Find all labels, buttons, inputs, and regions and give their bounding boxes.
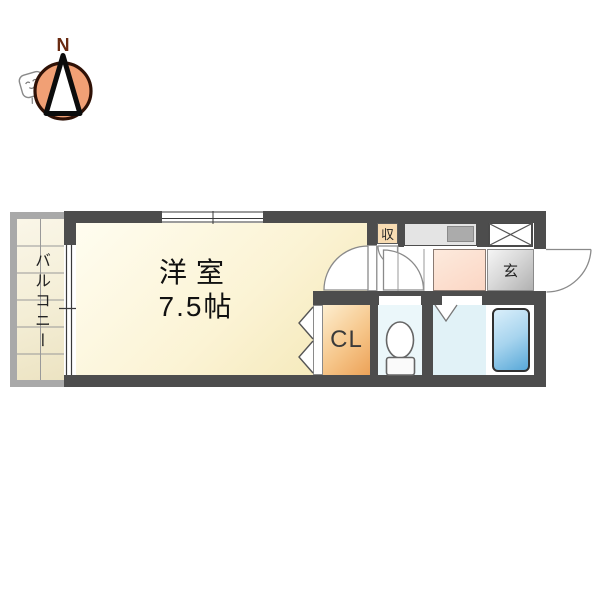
top-window-lines — [162, 211, 263, 224]
compass-icon — [35, 56, 91, 120]
entrance-label: 玄 — [487, 251, 534, 289]
door-arc-hall — [384, 250, 424, 290]
storage-label: 収 — [377, 224, 398, 243]
balcony-window-lines — [59, 245, 76, 375]
x-cross-icon — [489, 224, 532, 246]
entrance-door-arc — [546, 250, 591, 293]
main-room-label: 洋室 7.5帖 — [80, 257, 312, 325]
main-room-name: 洋室 — [80, 257, 312, 289]
north-label: N — [50, 35, 76, 56]
door-arc-mainroom — [324, 246, 368, 290]
closet-label: CL — [323, 305, 370, 375]
bath-door-icon — [435, 305, 457, 321]
floor-plan-page: { "compass": { "north": "N" }, "plan": {… — [0, 0, 600, 600]
toilet-icon — [387, 322, 415, 375]
balcony-label: バルコニー — [27, 231, 53, 373]
main-room-size: 7.5帖 — [80, 289, 312, 325]
